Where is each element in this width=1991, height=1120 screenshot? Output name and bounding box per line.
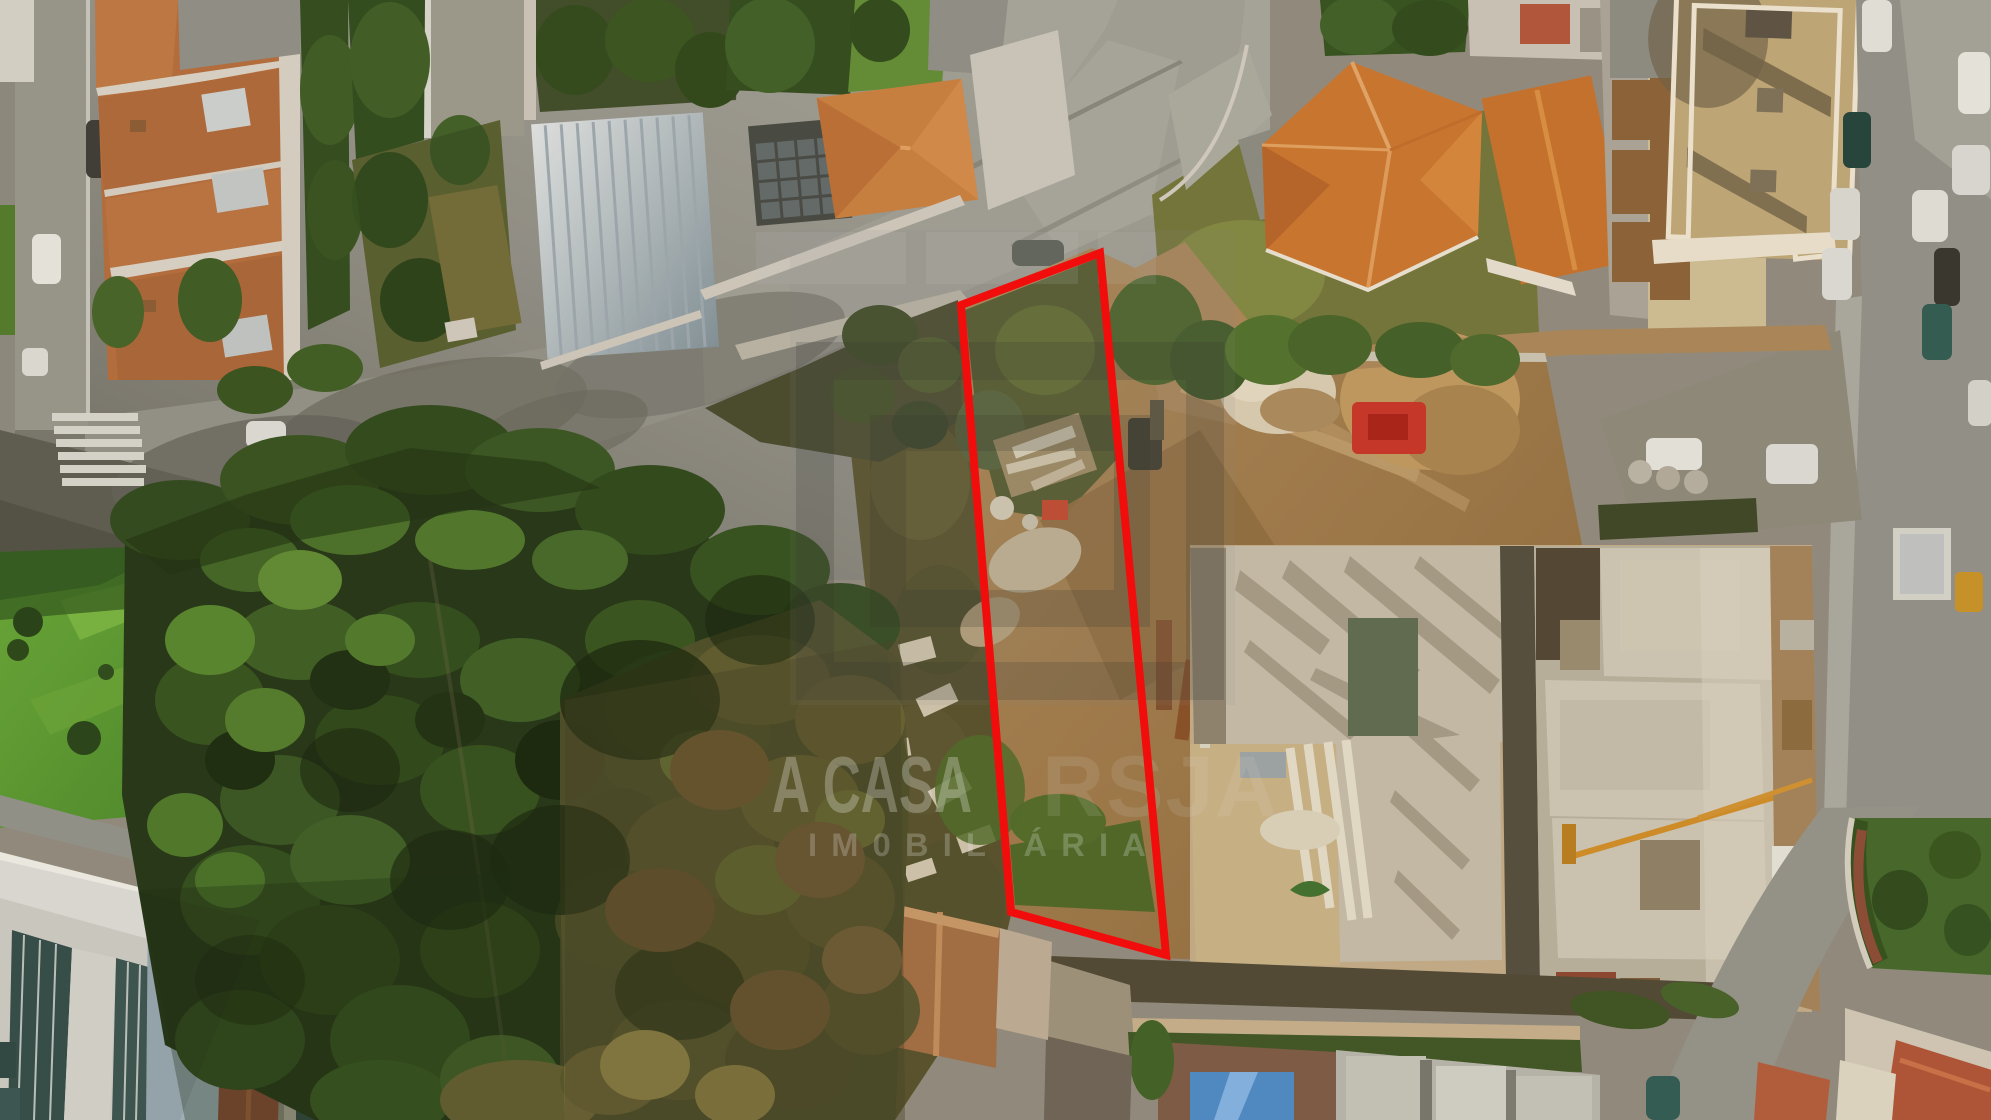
svg-text:A CASA: A CASA <box>772 740 972 829</box>
svg-text:RSJA: RSJA <box>1042 739 1279 835</box>
svg-text:IM0BILIÁRIA: IM0BILIÁRIA <box>808 827 1160 863</box>
